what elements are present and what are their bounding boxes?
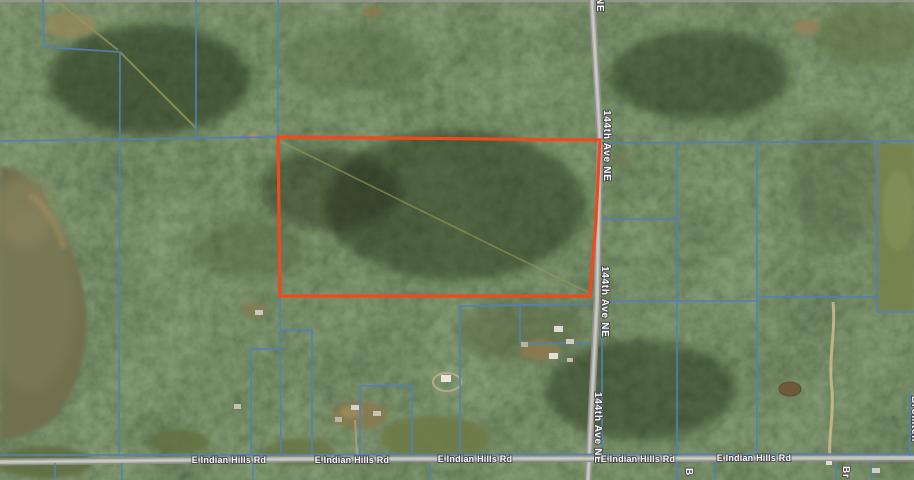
road-label-indian-hills: E Indian Hills Rd [438,454,512,464]
road-label-indian-hills: E Indian Hills Rd [192,455,266,465]
road-label-144th: 144th Ave NE [592,392,603,464]
satellite-map[interactable]: NE 144th Ave NE 144th Ave NE 144th Ave N… [0,0,914,480]
road-label-144th-fragment: NE [594,0,605,12]
road-label-indian-hills: E Indian Hills Rd [601,454,675,464]
pond [779,382,801,396]
road-label-fragment-b: B [683,468,694,476]
road-label-indian-hills: E Indian Hills Rd [315,455,389,465]
road-label-fragment-right-edge: Bromten [909,396,914,442]
road-label-fragment-br: Br [840,466,851,479]
road-label-indian-hills: E Indian Hills Rd [717,453,791,463]
road-label-144th: 144th Ave NE [601,110,612,182]
road-label-144th: 144th Ave NE [599,266,610,338]
terrain-base [0,0,914,480]
